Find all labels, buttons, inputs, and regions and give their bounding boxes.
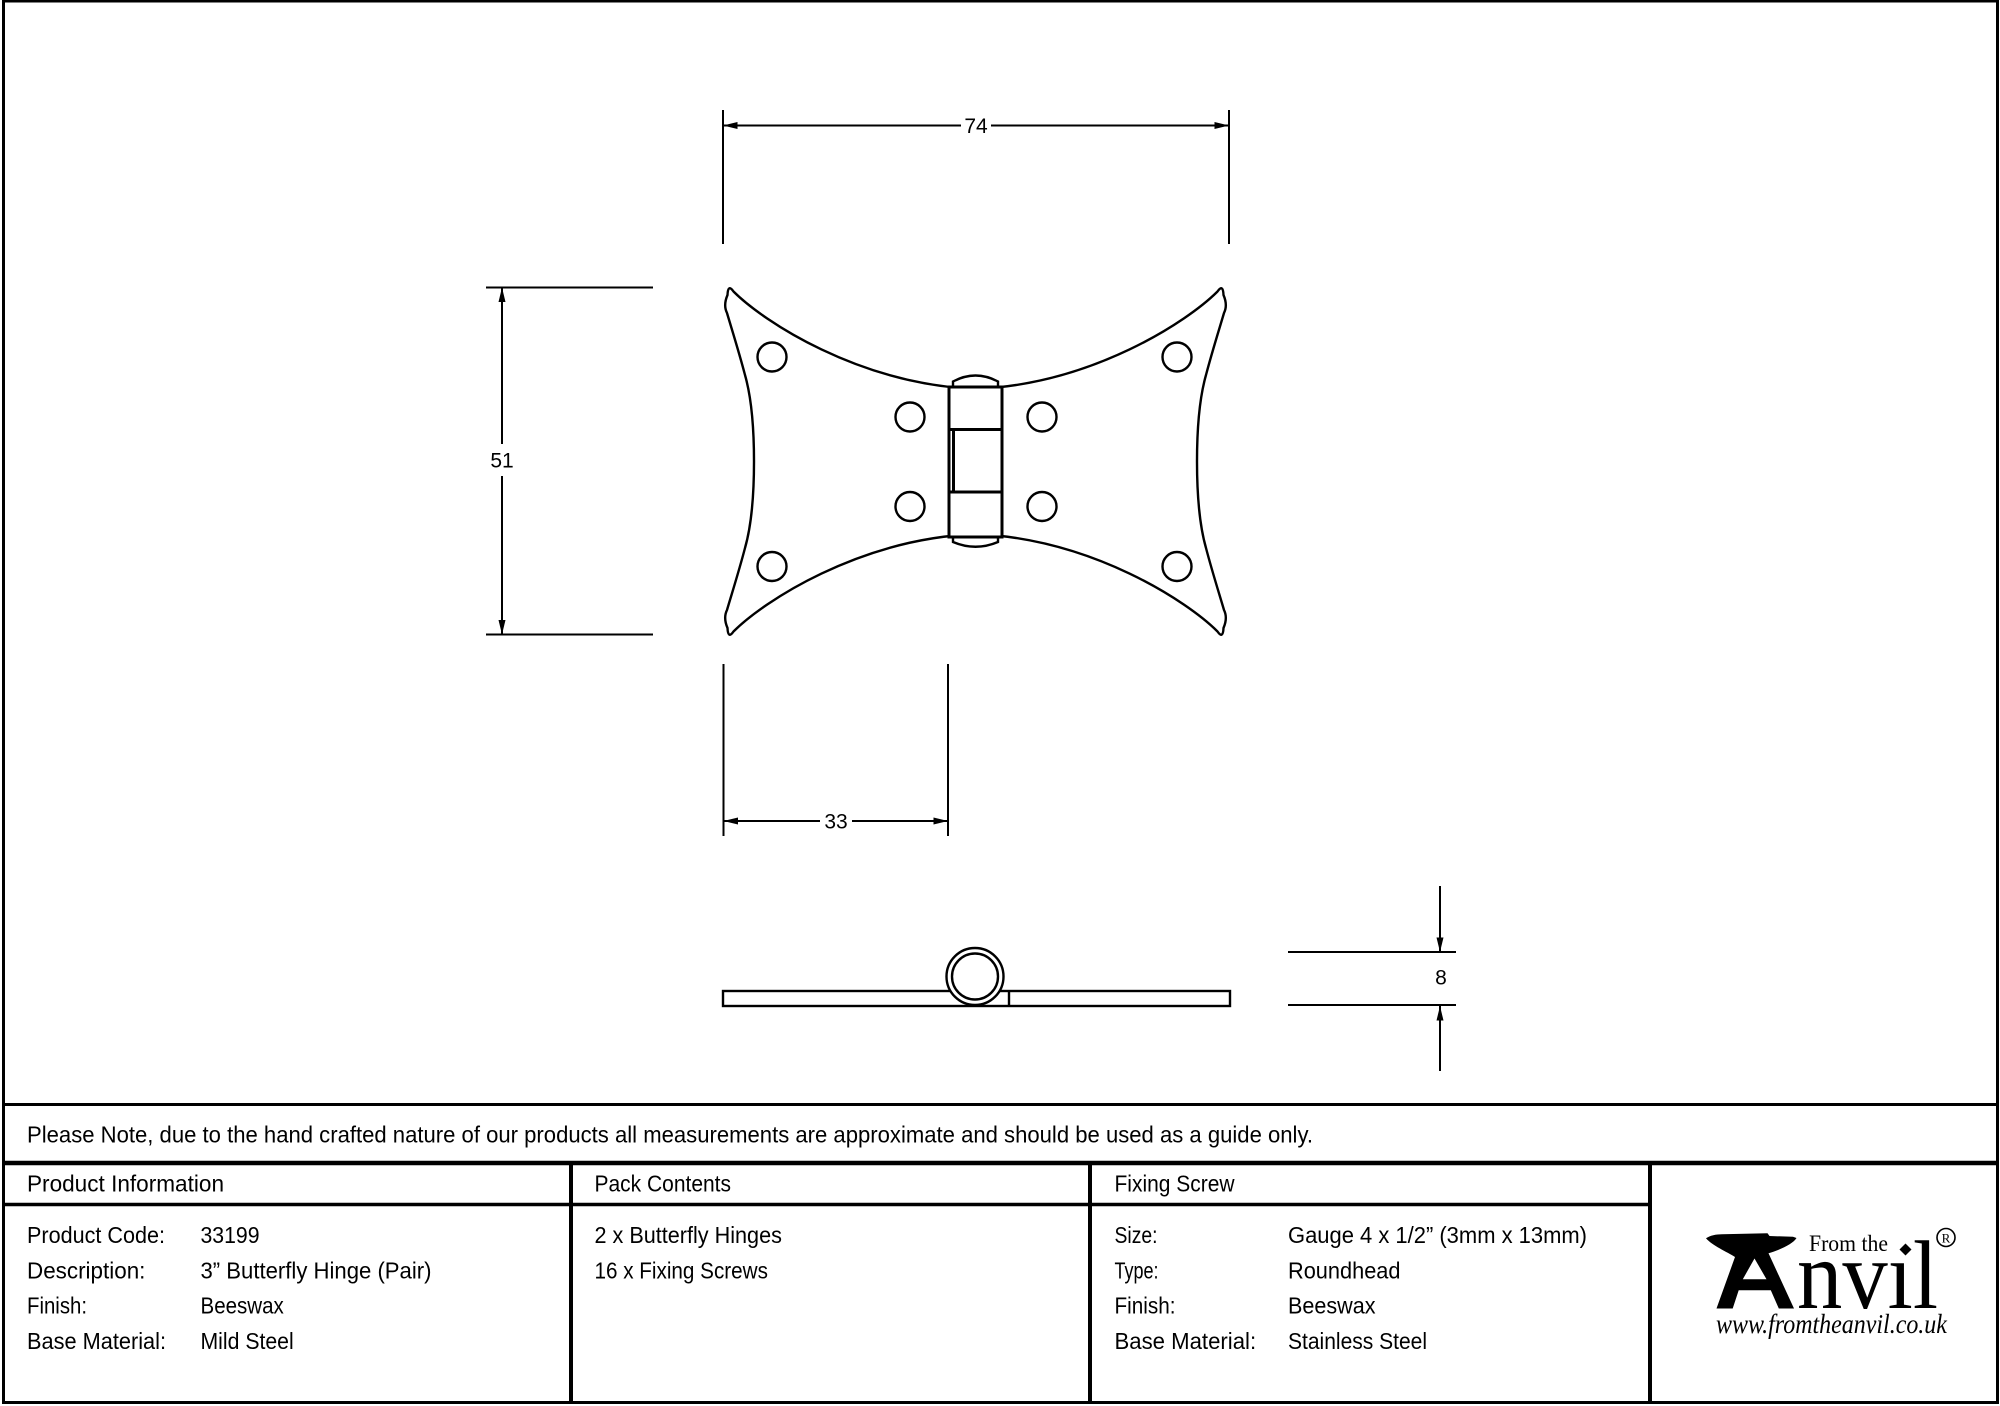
svg-text:Mild Steel: Mild Steel: [201, 1328, 294, 1354]
svg-text:Roundhead: Roundhead: [1288, 1257, 1401, 1283]
svg-text:R: R: [1942, 1231, 1951, 1246]
svg-text:33199: 33199: [201, 1222, 260, 1248]
svg-text:www.fromtheanvil.co.uk: www.fromtheanvil.co.uk: [1716, 1309, 1948, 1340]
svg-text:Base Material:: Base Material:: [1115, 1328, 1257, 1354]
svg-text:33: 33: [824, 811, 847, 834]
svg-text:Size:: Size:: [1115, 1222, 1158, 1248]
svg-text:Finish:: Finish:: [27, 1293, 87, 1319]
svg-text:74: 74: [964, 115, 988, 138]
svg-text:2 x Butterfly Hinges: 2 x Butterfly Hinges: [595, 1222, 782, 1248]
svg-text:Product Code:: Product Code:: [27, 1222, 165, 1248]
svg-text:3” Butterfly Hinge (Pair): 3” Butterfly Hinge (Pair): [201, 1257, 432, 1283]
svg-text:Base Material:: Base Material:: [27, 1328, 166, 1354]
svg-text:16 x Fixing Screws: 16 x Fixing Screws: [595, 1257, 768, 1283]
svg-text:Please Note, due to the hand c: Please Note, due to the hand crafted nat…: [27, 1122, 1313, 1148]
svg-text:Stainless Steel: Stainless Steel: [1288, 1328, 1427, 1354]
svg-text:51: 51: [490, 450, 513, 473]
svg-text:Pack Contents: Pack Contents: [595, 1171, 732, 1197]
svg-text:8: 8: [1435, 967, 1447, 990]
svg-text:Product Information: Product Information: [27, 1171, 224, 1197]
svg-text:Beeswax: Beeswax: [1288, 1293, 1376, 1319]
svg-text:Finish:: Finish:: [1115, 1293, 1176, 1319]
svg-text:Gauge 4 x 1/2” (3mm x 13mm): Gauge 4 x 1/2” (3mm x 13mm): [1288, 1222, 1587, 1248]
svg-text:Beeswax: Beeswax: [201, 1293, 285, 1319]
svg-text:Type:: Type:: [1115, 1257, 1159, 1283]
svg-text:Description:: Description:: [27, 1257, 145, 1283]
svg-text:Fixing Screw: Fixing Screw: [1115, 1171, 1236, 1197]
